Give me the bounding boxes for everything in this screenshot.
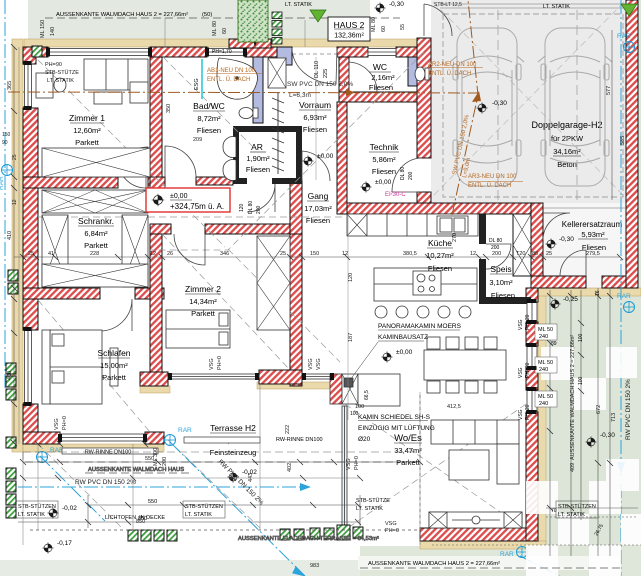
- svg-text:ML 150: ML 150: [40, 20, 46, 38]
- svg-text:AR: AR: [251, 142, 263, 152]
- svg-text:T20: T20: [516, 251, 525, 257]
- svg-text:Schrankr.: Schrankr.: [78, 216, 114, 226]
- svg-text:+324,75m ü. A.: +324,75m ü. A.: [170, 202, 224, 211]
- svg-text:150: 150: [310, 251, 319, 257]
- svg-text:850: 850: [138, 516, 147, 522]
- svg-text:Küche: Küche: [428, 238, 452, 248]
- svg-text:LT. STATIK: LT. STATIK: [47, 78, 74, 84]
- svg-text:AUSSENKANTE WALMDACH HAUS: AUSSENKANTE WALMDACH HAUS: [88, 467, 184, 473]
- svg-text:RAR: RAR: [617, 33, 631, 40]
- svg-text:STB-STÜTZE: STB-STÜTZE: [356, 497, 390, 504]
- svg-text:120: 120: [348, 273, 354, 282]
- svg-text:222: 222: [285, 425, 291, 434]
- svg-text:Fliesen: Fliesen: [197, 126, 221, 135]
- svg-text:Fliesen: Fliesen: [306, 216, 330, 225]
- svg-text:-0,17: -0,17: [57, 540, 72, 547]
- svg-text:209: 209: [193, 137, 202, 143]
- svg-text:132,36m²: 132,36m²: [334, 33, 364, 40]
- svg-text:100: 100: [350, 411, 359, 417]
- svg-text:100: 100: [578, 376, 584, 385]
- svg-text:AUSSENKANTE WALMDACH HAUS 2 =: AUSSENKANTE WALMDACH HAUS 2 = 227,66m²: [570, 335, 576, 460]
- svg-text:Parkett: Parkett: [75, 138, 100, 147]
- svg-text:25: 25: [546, 251, 552, 257]
- svg-text:412,5: 412,5: [447, 404, 461, 410]
- svg-text:STB-STÜTZEN: STB-STÜTZEN: [18, 503, 56, 510]
- svg-text:Zimmer 2: Zimmer 2: [185, 284, 221, 294]
- svg-text:187: 187: [348, 333, 354, 342]
- svg-text:AUSSENKANTE WALMDACH HAUS 2 =: AUSSENKANTE WALMDACH HAUS 2 = 227,66m²: [368, 561, 500, 567]
- svg-text:100: 100: [578, 333, 584, 342]
- svg-text:(50): (50): [202, 12, 212, 18]
- svg-text:PH=90: PH=90: [45, 62, 62, 68]
- svg-text:3,10m²: 3,10m²: [489, 278, 513, 287]
- svg-text:Fliesen: Fliesen: [303, 125, 327, 134]
- svg-text:AR3-NEU DN 100: AR3-NEU DN 100: [468, 174, 517, 180]
- svg-text:410: 410: [7, 231, 13, 240]
- svg-text:PH=0: PH=0: [385, 528, 399, 534]
- svg-text:17,03m²: 17,03m²: [304, 204, 332, 213]
- svg-text:140: 140: [50, 27, 56, 36]
- svg-text:Technik: Technik: [370, 142, 400, 152]
- svg-text:240: 240: [539, 367, 548, 373]
- svg-text:26: 26: [167, 251, 173, 257]
- svg-text:240: 240: [539, 401, 548, 407]
- svg-text:PH=20: PH=20: [525, 362, 531, 378]
- svg-text:ML 300: ML 300: [153, 448, 159, 466]
- svg-text:ML 80: ML 80: [371, 17, 377, 32]
- svg-text:±0,00: ±0,00: [396, 349, 413, 356]
- svg-text:Bad/WC: Bad/WC: [193, 101, 225, 111]
- svg-text:672: 672: [596, 405, 602, 414]
- svg-text:VSG: VSG: [518, 367, 524, 378]
- svg-text:DL 110: DL 110: [314, 61, 320, 78]
- svg-text:Fliesen: Fliesen: [491, 291, 515, 300]
- svg-text:PH=1,70: PH=1,70: [212, 49, 232, 55]
- svg-text:STB-LT 12,5: STB-LT 12,5: [434, 2, 462, 8]
- svg-text:12: 12: [470, 251, 476, 257]
- svg-text:PANORAMAKAMIN MOERS: PANORAMAKAMIN MOERS: [378, 323, 462, 330]
- svg-text:2,16m²: 2,16m²: [371, 73, 395, 82]
- svg-text:KAMINBAUSATZ: KAMINBAUSATZ: [378, 334, 428, 341]
- svg-text:ML 50: ML 50: [538, 394, 553, 400]
- svg-text:25: 25: [12, 154, 18, 160]
- svg-text:Gang: Gang: [308, 191, 329, 201]
- svg-text:Zimmer 1: Zimmer 1: [69, 113, 105, 123]
- svg-text:RW-RINNE DN100: RW-RINNE DN100: [276, 437, 323, 443]
- svg-text:RAR: RAR: [0, 176, 5, 190]
- svg-text:ENTL. Ü. DACH: ENTL. Ü. DACH: [468, 182, 511, 189]
- svg-text:VSG: VSG: [346, 458, 352, 470]
- svg-text:AUSSENKANTE FLACHDACH TERRASSE: AUSSENKANTE FLACHDACH TERRASSE = 34,53m²: [238, 536, 379, 542]
- svg-text:LT. STATIK: LT. STATIK: [285, 2, 312, 8]
- svg-text:ENTL. Ü. DACH: ENTL. Ü. DACH: [428, 70, 471, 77]
- svg-text:-0,25: -0,25: [563, 296, 578, 303]
- svg-text:ML 50: ML 50: [538, 360, 553, 366]
- svg-text:VSG: VSG: [316, 358, 322, 370]
- svg-text:VSG: VSG: [54, 418, 60, 430]
- svg-text:10,27m²: 10,27m²: [426, 251, 454, 260]
- svg-text:PH=0: PH=0: [217, 356, 223, 370]
- svg-text:16: 16: [595, 290, 601, 296]
- svg-text:228: 228: [90, 251, 99, 257]
- svg-text:Fliesen: Fliesen: [428, 264, 452, 273]
- svg-text:12,60m²: 12,60m²: [73, 126, 101, 135]
- svg-text:12: 12: [12, 199, 18, 205]
- svg-text:RW-RINNE DN100: RW-RINNE DN100: [85, 450, 132, 456]
- svg-text:585: 585: [620, 136, 626, 145]
- svg-text:AR2-NEU DN 100: AR2-NEU DN 100: [428, 62, 477, 68]
- svg-text:41: 41: [48, 251, 54, 257]
- svg-text:±0,00: ±0,00: [317, 153, 334, 160]
- svg-text:5,86m²: 5,86m²: [372, 155, 396, 164]
- svg-text:-0,30: -0,30: [600, 432, 615, 439]
- svg-text:VSG: VSG: [308, 358, 314, 370]
- svg-text:240: 240: [539, 334, 548, 340]
- svg-text:12: 12: [150, 251, 156, 257]
- svg-text:STB-STÜTZE: STB-STÜTZE: [45, 69, 79, 76]
- svg-text:33,47m²: 33,47m²: [394, 446, 422, 455]
- svg-text:RAR: RAR: [617, 293, 631, 300]
- svg-text:±0,00: ±0,00: [170, 193, 188, 200]
- svg-text:Parkett: Parkett: [102, 373, 127, 382]
- svg-text:RAR: RAR: [178, 427, 192, 434]
- svg-text:70: 70: [551, 508, 557, 514]
- svg-text:VSG: VSG: [385, 521, 397, 527]
- svg-text:ENTL. Ü. DACH: ENTL. Ü. DACH: [207, 76, 250, 83]
- svg-text:DL 80: DL 80: [489, 238, 502, 244]
- svg-text:VSG: VSG: [209, 358, 215, 370]
- svg-text:-0,02: -0,02: [62, 505, 77, 512]
- svg-text:60: 60: [222, 28, 228, 34]
- svg-text:6,93m²: 6,93m²: [303, 113, 327, 122]
- svg-text:402: 402: [287, 463, 293, 472]
- svg-text:±0,00: ±0,00: [375, 179, 392, 186]
- svg-text:88: 88: [532, 251, 538, 257]
- svg-text:L=6,3m: L=6,3m: [289, 92, 311, 99]
- svg-text:PH=0: PH=0: [62, 416, 68, 430]
- svg-text:Fliesen: Fliesen: [369, 83, 393, 92]
- svg-text:14,34m²: 14,34m²: [189, 297, 217, 306]
- svg-text:RAR: RAR: [500, 551, 514, 558]
- svg-text:380,5: 380,5: [403, 251, 417, 257]
- svg-text:LT. STATIK: LT. STATIK: [185, 512, 212, 518]
- svg-text:RW PVC DN 150 2%: RW PVC DN 150 2%: [75, 479, 136, 486]
- svg-text:120: 120: [239, 203, 245, 212]
- svg-text:STB-STÜTZEN: STB-STÜTZEN: [558, 503, 596, 510]
- svg-text:LT. STATIK: LT. STATIK: [543, 4, 570, 10]
- svg-text:Ø20: Ø20: [358, 436, 371, 443]
- svg-text:225: 225: [323, 69, 329, 78]
- svg-text:-0,30: -0,30: [559, 236, 574, 243]
- svg-text:365: 365: [7, 81, 13, 90]
- svg-text:6,84m²: 6,84m²: [84, 229, 108, 238]
- svg-text:550: 550: [148, 499, 157, 505]
- svg-text:ML 50: ML 50: [538, 327, 553, 333]
- svg-text:Parkett: Parkett: [191, 309, 216, 318]
- svg-text:RW PVC DN 150 2%: RW PVC DN 150 2%: [625, 379, 632, 440]
- svg-text:DL 80: DL 80: [400, 167, 406, 180]
- svg-text:350: 350: [166, 104, 172, 113]
- svg-text:89: 89: [551, 341, 557, 347]
- svg-text:AB1-NEU DN 100: AB1-NEU DN 100: [207, 68, 256, 74]
- svg-text:EINZÜGIG MIT LÜFTUNG: EINZÜGIG MIT LÜFTUNG: [358, 424, 435, 432]
- svg-text:25: 25: [280, 251, 286, 257]
- svg-text:Terrasse H2: Terrasse H2: [210, 423, 256, 433]
- svg-text:150: 150: [2, 132, 11, 138]
- svg-text:66,5: 66,5: [364, 390, 370, 400]
- svg-text:443: 443: [248, 473, 254, 482]
- svg-text:12: 12: [342, 251, 348, 257]
- svg-text:400: 400: [7, 371, 13, 380]
- svg-text:279,5: 279,5: [586, 251, 600, 257]
- svg-text:270: 270: [452, 233, 458, 242]
- svg-text:VSG: VSG: [518, 319, 524, 330]
- svg-text:SW PVC DN 150 2,0%: SW PVC DN 150 2,0%: [287, 81, 353, 88]
- svg-text:STB-STÜTZEN: STB-STÜTZEN: [185, 503, 223, 510]
- svg-text:60: 60: [381, 26, 387, 32]
- svg-text:Feinsteinzeug: Feinsteinzeug: [210, 448, 257, 457]
- svg-text:PH=0: PH=0: [354, 456, 360, 470]
- svg-text:15,00m²: 15,00m²: [100, 361, 128, 370]
- svg-text:55: 55: [400, 24, 406, 30]
- svg-text:Parkett: Parkett: [84, 241, 109, 250]
- svg-text:8,72m²: 8,72m²: [197, 114, 221, 123]
- svg-text:Fliesen: Fliesen: [246, 165, 270, 174]
- svg-text:200: 200: [162, 457, 168, 466]
- svg-text:-0,30: -0,30: [389, 1, 404, 8]
- svg-text:Fliesen: Fliesen: [372, 167, 396, 176]
- svg-text:AUSSENKANTE WALMDACH HAUS 2 =: AUSSENKANTE WALMDACH HAUS 2 = 227,66m²: [56, 12, 188, 18]
- svg-text:100: 100: [355, 404, 364, 410]
- svg-text:983: 983: [310, 563, 319, 569]
- svg-text:ML 80: ML 80: [212, 21, 218, 36]
- svg-text:Wo/Es: Wo/Es: [394, 433, 422, 444]
- svg-text:LT. STATIK: LT. STATIK: [18, 512, 45, 518]
- svg-text:-0,30: -0,30: [492, 100, 507, 107]
- svg-text:Speis: Speis: [490, 264, 511, 274]
- svg-text:Doppelgarage-H2: Doppelgarage-H2: [531, 120, 602, 130]
- svg-text:WC: WC: [373, 62, 387, 72]
- svg-text:5,93m²: 5,93m²: [581, 230, 605, 239]
- svg-text:346: 346: [220, 251, 229, 257]
- svg-text:Vorraum: Vorraum: [299, 100, 331, 110]
- svg-text:90: 90: [2, 140, 8, 146]
- svg-text:Schlafen: Schlafen: [97, 348, 130, 358]
- svg-text:1,90m²: 1,90m²: [246, 154, 270, 163]
- svg-text:200: 200: [492, 251, 501, 257]
- svg-text:Kellerersatzraum: Kellerersatzraum: [562, 220, 623, 229]
- svg-text:409: 409: [570, 463, 576, 472]
- svg-text:577: 577: [606, 86, 612, 95]
- svg-text:ESG: ESG: [194, 78, 200, 90]
- svg-text:EI²30-C: EI²30-C: [385, 192, 406, 198]
- svg-text:713: 713: [611, 413, 617, 422]
- svg-text:200: 200: [408, 171, 414, 180]
- svg-text:HAUS 2: HAUS 2: [334, 20, 365, 30]
- svg-text:VSG: VSG: [518, 409, 524, 420]
